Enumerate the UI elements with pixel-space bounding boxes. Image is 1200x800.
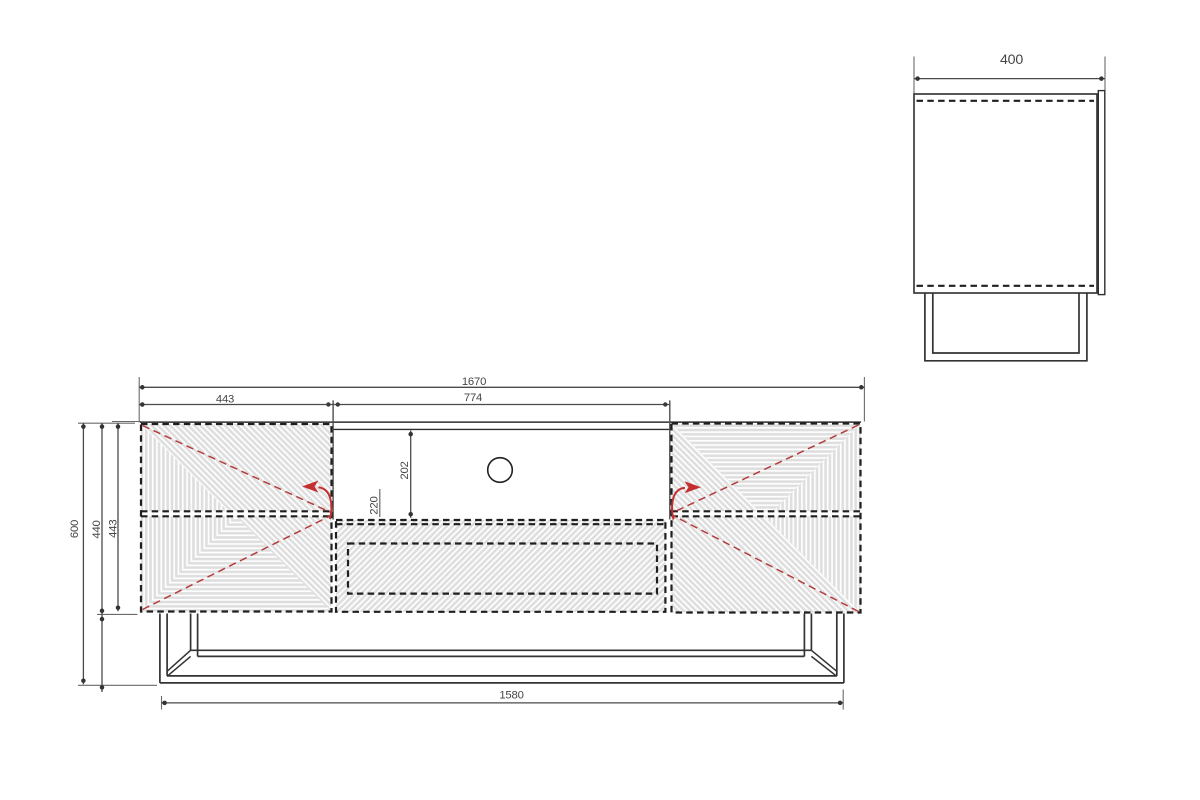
svg-text:443: 443 (108, 520, 120, 538)
svg-text:1580: 1580 (499, 690, 523, 702)
svg-text:443: 443 (216, 393, 234, 405)
svg-text:400: 400 (1000, 52, 1023, 68)
svg-text:220: 220 (368, 496, 380, 514)
svg-text:600: 600 (69, 520, 81, 538)
svg-text:1670: 1670 (462, 376, 486, 388)
svg-text:774: 774 (464, 392, 482, 404)
svg-text:440: 440 (91, 520, 103, 538)
svg-text:202: 202 (399, 461, 411, 479)
